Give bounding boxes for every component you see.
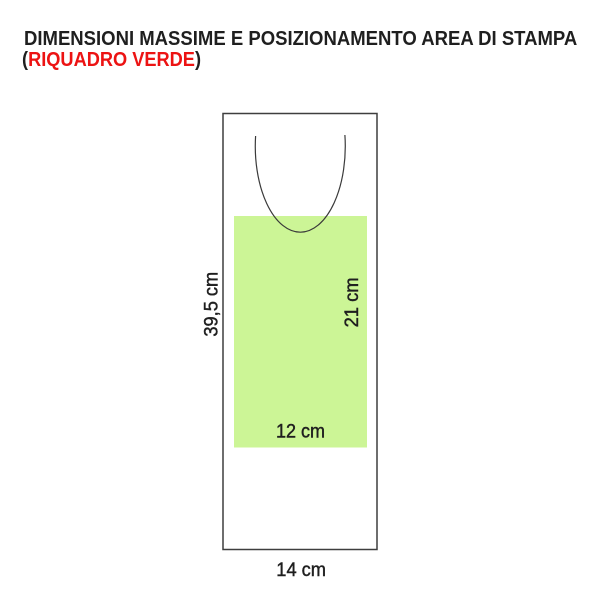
svg-text:21 cm: 21 cm [341,277,363,327]
svg-text:39,5 cm: 39,5 cm [201,272,223,337]
svg-text:14 cm: 14 cm [276,559,326,581]
svg-text:12 cm: 12 cm [276,421,325,443]
